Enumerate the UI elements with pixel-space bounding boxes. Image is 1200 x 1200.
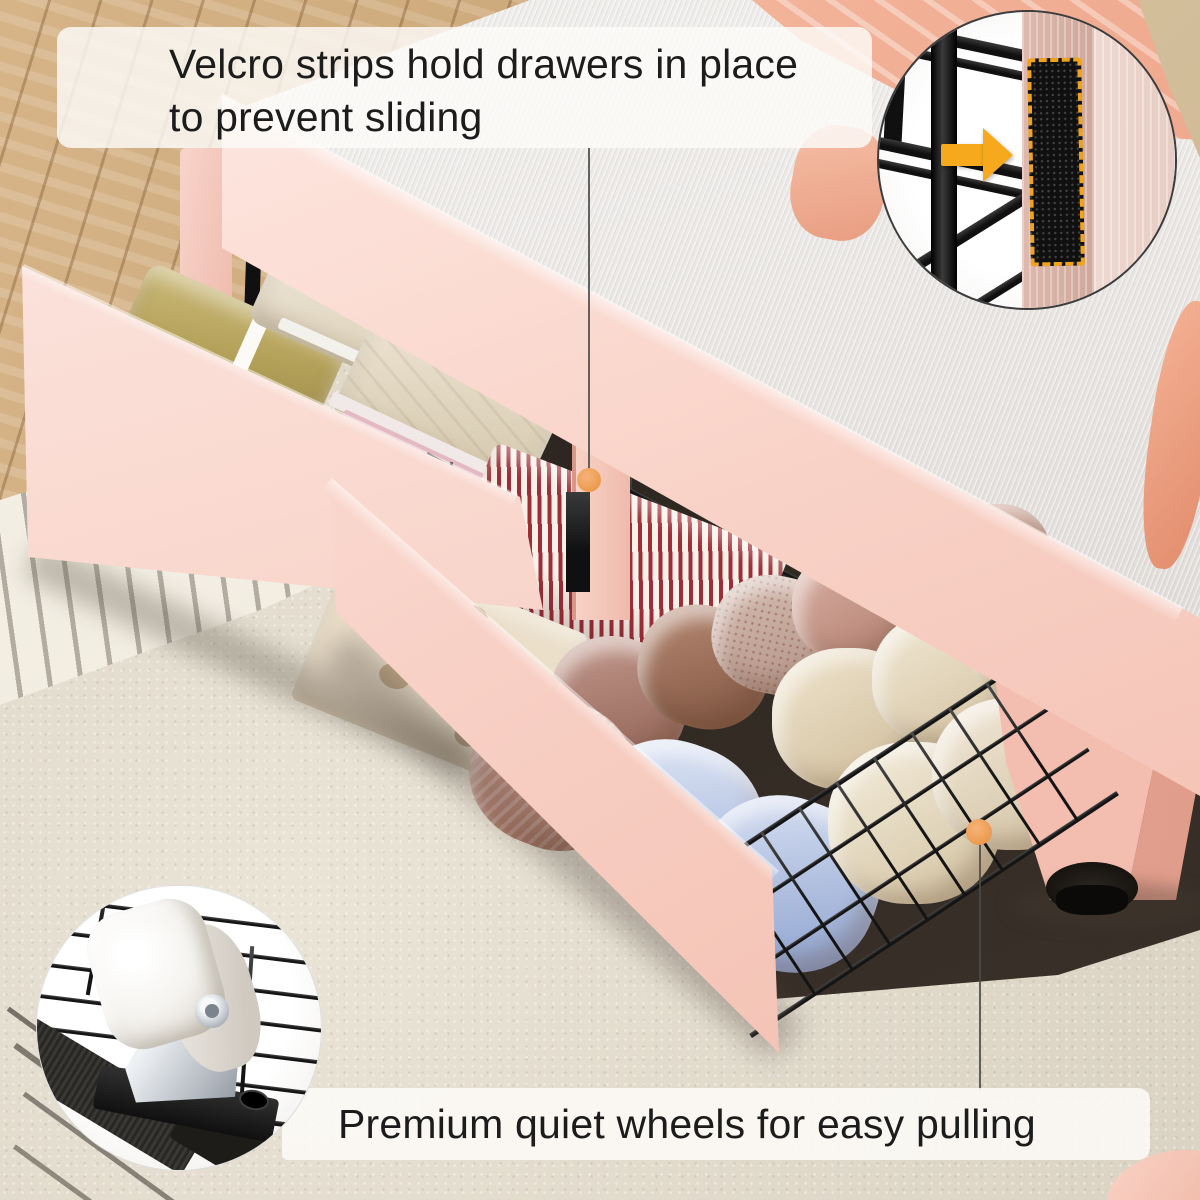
- wheel-bolt-center: [205, 1004, 219, 1018]
- callout-line: [588, 148, 590, 470]
- product-photo: Velcro strips hold drawers in place to p…: [0, 0, 1200, 1200]
- leg-foot-cap: [1056, 885, 1128, 915]
- wire-basket-post: [872, 756, 966, 895]
- orange-arrow-icon: [941, 144, 986, 166]
- velcro-strip-inset: [877, 10, 1177, 310]
- top-caption-line2: to prevent sliding: [169, 91, 798, 144]
- wire-basket-post: [948, 707, 1042, 846]
- wire-basket-post: [910, 732, 1004, 871]
- top-caption: Velcro strips hold drawers in place to p…: [169, 38, 798, 144]
- velcro-strip: [1027, 58, 1085, 267]
- drawer-post-fabric-light: [1094, 10, 1177, 310]
- top-caption-line1: Velcro strips hold drawers in place: [169, 38, 798, 91]
- wire-basket-post: [797, 806, 891, 945]
- callout-dot: [966, 819, 992, 845]
- wire-basket-post: [835, 781, 929, 920]
- callout-line: [979, 844, 981, 1090]
- orange-arrow-head: [983, 128, 1013, 182]
- metal-frame-bar: [566, 492, 590, 592]
- callout-dot: [577, 468, 601, 492]
- bottom-caption: Premium quiet wheels for easy pulling: [338, 1088, 1036, 1160]
- wheel-inset: [36, 885, 322, 1171]
